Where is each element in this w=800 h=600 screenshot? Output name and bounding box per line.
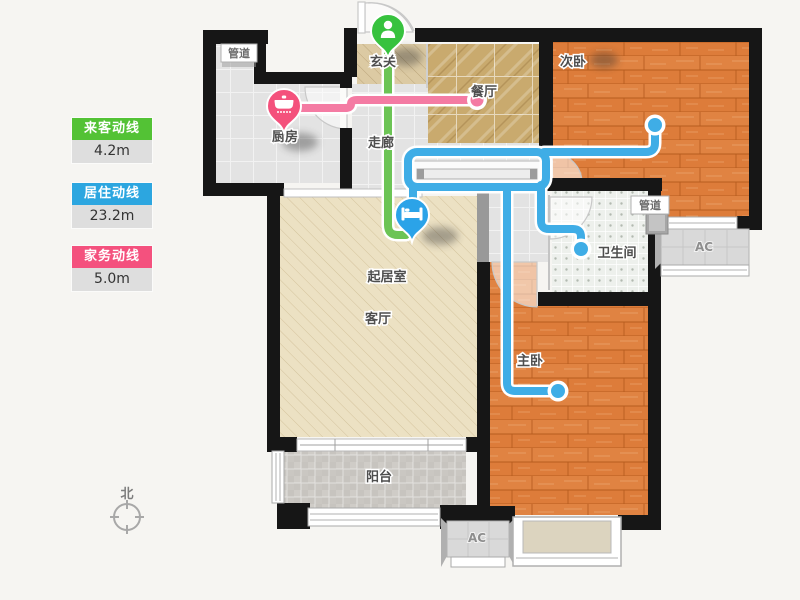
kitchen-duct-label: 管道 (221, 44, 257, 62)
legend-resident: 居住动线 23.2m (72, 183, 152, 228)
bathroom-label: 卫生间 (597, 245, 636, 261)
legend-chore: 家务动线 5.0m (72, 246, 152, 291)
corridor-label: 走廊 (368, 135, 394, 151)
legend-resident-value: 23.2m (72, 205, 152, 228)
legend-guest: 来客动线 4.2m (72, 118, 152, 163)
balcony-window-bottom (308, 508, 440, 526)
bathroom-duct-label: 管道 (631, 196, 669, 214)
master-label: 主卧 (517, 353, 543, 369)
bedroom2-window (667, 217, 737, 230)
compass: 北 (110, 487, 144, 534)
dining-label: 餐厅 (470, 84, 497, 100)
entry-door-panel (358, 2, 365, 33)
floorplan-canvas: 管道 管道 厨房 玄关 餐厅 走廊 次卧 起居室 客厅 卫生间 主卧 阳台 AC… (0, 0, 800, 600)
compass-icon (110, 500, 144, 534)
floorplan-app: 管道 管道 厨房 玄关 餐厅 走廊 次卧 起居室 客厅 卫生间 主卧 阳台 AC… (0, 0, 800, 600)
svg-text:管道: 管道 (228, 46, 250, 60)
kitchen-living-threshold (284, 189, 422, 197)
ac-bottom-label: AC (468, 531, 486, 545)
legend-resident-title: 居住动线 (72, 183, 152, 205)
legend-chore-value: 5.0m (72, 268, 152, 291)
north-label: 北 (120, 487, 133, 502)
balcony-sliding-door[interactable] (297, 439, 466, 451)
legend-chore-title: 家务动线 (72, 246, 152, 268)
bathroom-duct-shaft (646, 212, 668, 234)
entrance-label: 玄关 (370, 54, 396, 70)
living2-label: 客厅 (365, 311, 391, 327)
legend-guest-value: 4.2m (72, 140, 152, 163)
balcony-label: 阳台 (366, 469, 392, 485)
bedroom2-label: 次卧 (560, 54, 586, 70)
balcony-window-left (272, 451, 284, 503)
svg-text:管道: 管道 (639, 198, 661, 212)
living-label: 起居室 (366, 269, 406, 285)
legend-guest-title: 来客动线 (72, 118, 152, 140)
bay-window (513, 517, 621, 566)
divider-entrance-dining (426, 44, 428, 88)
ac-right-label: AC (695, 240, 713, 254)
